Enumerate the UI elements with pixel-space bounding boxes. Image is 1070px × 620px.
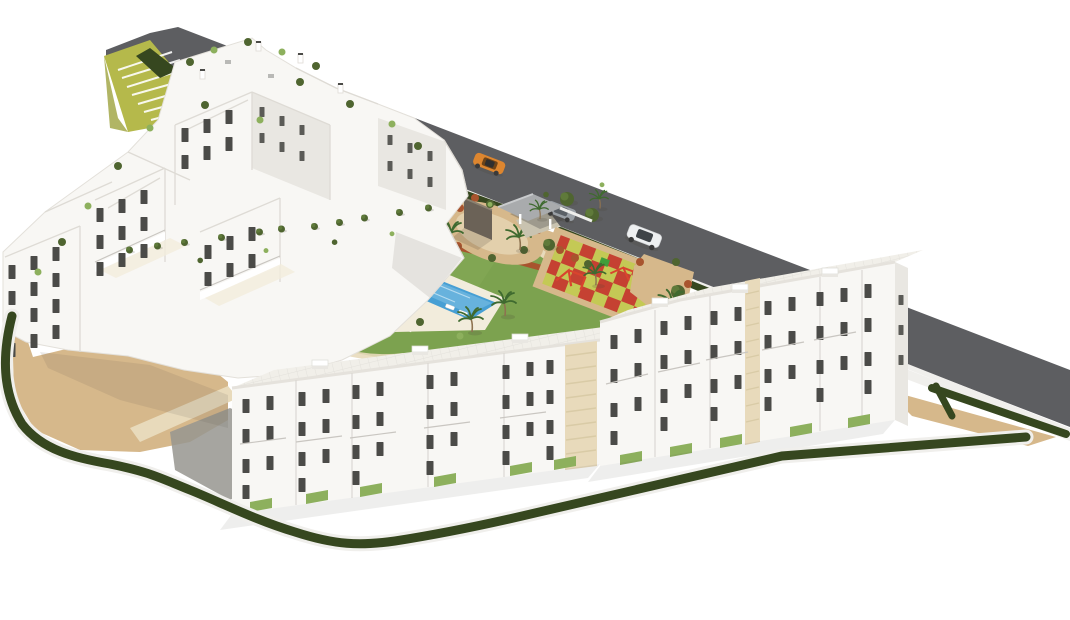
side-face [895,262,908,426]
stair-gap [565,341,597,470]
render-image [0,0,1070,620]
stair-gap [745,278,760,445]
